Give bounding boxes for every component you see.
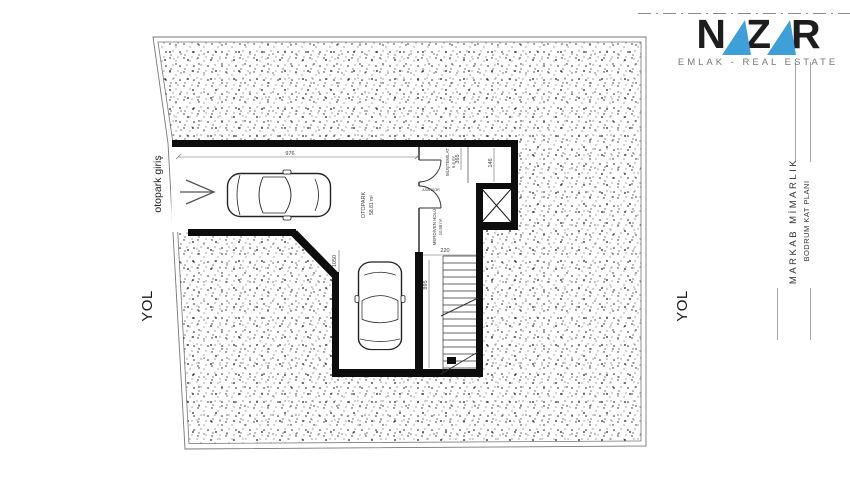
- logo-letter-a-triangle-2: [767, 20, 796, 55]
- dim-stair-width: 220: [440, 248, 449, 254]
- road-label-right: YOL: [674, 285, 692, 327]
- wall-drive-south: [188, 229, 296, 236]
- dim-stair-depth: 895: [423, 280, 429, 289]
- logo-wordmark: N Z R: [696, 12, 819, 54]
- floor-plan: 976 220 895 1050 365 146 OTOPARK 58.81 m…: [0, 0, 850, 485]
- room-label-utility: MÜŞTEMİLAT: [445, 148, 450, 176]
- construction-line-1: [795, 62, 796, 162]
- wall-top: [172, 140, 518, 147]
- stair-post: [447, 357, 456, 364]
- dim-garage-width: 976: [285, 151, 294, 157]
- construction-line-3: [777, 288, 778, 340]
- car-top-view-horizontal: [228, 170, 331, 220]
- drawing-sheet: 976 220 895 1050 365 146 OTOPARK 58.81 m…: [0, 0, 850, 485]
- nazar-logo: N Z R EMLAK - REAL ESTATE: [678, 12, 838, 68]
- dim-utility-right: 146: [488, 158, 494, 167]
- wall-stair-right: [476, 183, 483, 377]
- firm-name-vertical: MARKAB MİMARLIK: [788, 150, 800, 292]
- drawing-title-vertical: BODRUM KAT PLANI: [802, 165, 812, 277]
- construction-line-4: [810, 288, 811, 340]
- wall-bottom: [332, 369, 483, 377]
- construction-line-2: [810, 62, 811, 162]
- room-label-garage: OTOPARK: [361, 191, 367, 218]
- room-label-elevator: ASANSÖR: [422, 188, 440, 192]
- room-label-stair-hall: MERDİVEN HOLÜ: [432, 209, 437, 246]
- wall-left-lower: [332, 272, 339, 372]
- room-label-utility-area: 6.6 m²: [451, 155, 456, 167]
- dim-garage-depth: 1050: [332, 255, 338, 267]
- room-label-stair-hall-area: 10.58 m²: [438, 218, 443, 235]
- car-top-view-vertical: [355, 262, 405, 350]
- logo-letter-n: N: [696, 14, 725, 54]
- logo-subtitle: EMLAK - REAL ESTATE: [678, 57, 838, 68]
- logo-letter-a-triangle: [722, 20, 751, 55]
- room-label-garage-area: 58.81 m²: [369, 195, 375, 215]
- road-label-left: YOL: [139, 285, 157, 327]
- wall-stair-left: [415, 252, 423, 372]
- parking-entrance-label: otopark giriş: [152, 143, 166, 225]
